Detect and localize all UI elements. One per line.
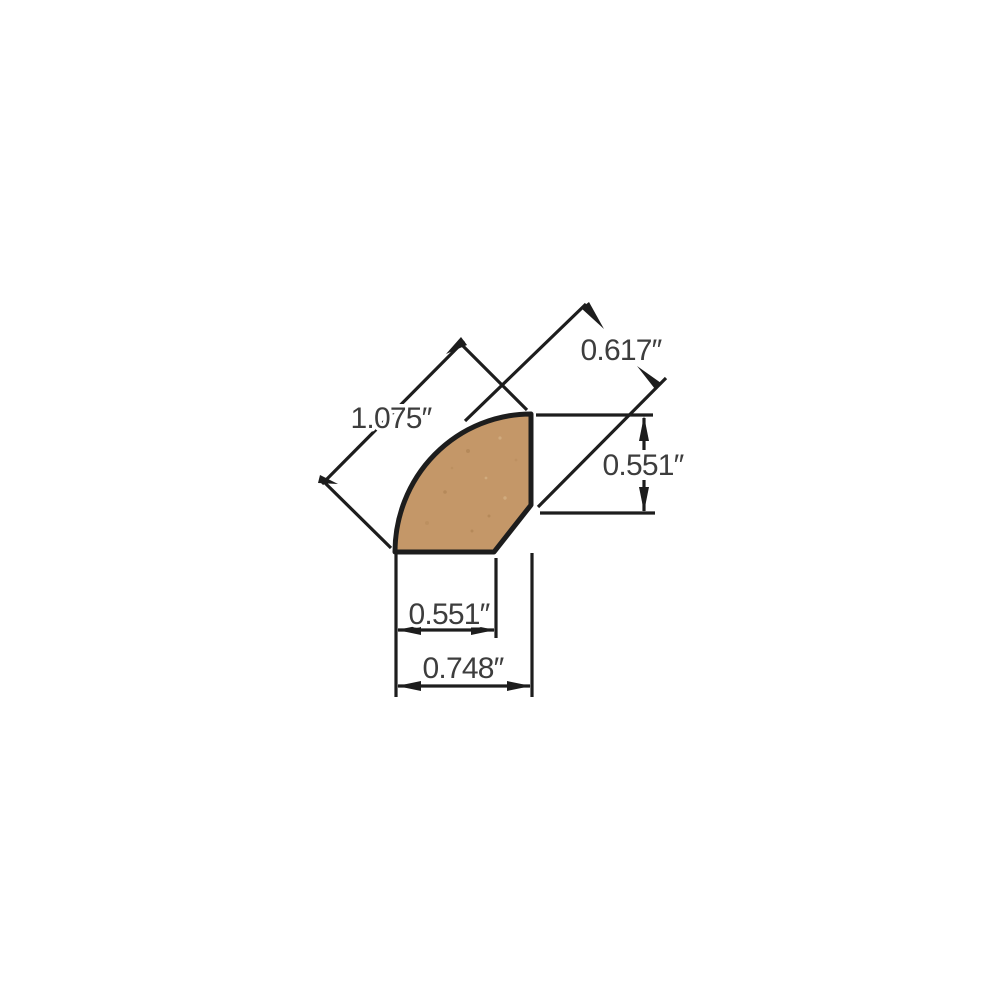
arrowhead-right xyxy=(507,681,531,691)
extension-line xyxy=(465,304,586,421)
dimension-bottom-inner-width: 0.551″ xyxy=(397,558,496,638)
arrowhead-up xyxy=(639,416,649,441)
extension-line xyxy=(461,344,527,410)
dimension-label: 0.551″ xyxy=(603,449,685,482)
extension-line xyxy=(320,478,391,548)
dimension-label: 0.748″ xyxy=(423,652,505,685)
arrowhead-down xyxy=(639,487,649,512)
dimension-label: 0.617″ xyxy=(581,334,663,367)
dimension-arrow-tick xyxy=(637,366,661,389)
arrowhead-left xyxy=(397,681,421,691)
dimension-arrow-tick xyxy=(446,337,467,354)
dimension-label: 1.075″ xyxy=(351,402,433,435)
drawing-canvas: 0.617″ 1.075″ 0.551″ 0.551″ xyxy=(0,0,1000,1000)
dimension-right-height: 0.551″ xyxy=(536,415,685,513)
dimension-label: 0.551″ xyxy=(409,598,491,631)
dimension-arrow-tick xyxy=(581,302,604,329)
moulding-profile-drawing: 0.617″ 1.075″ 0.551″ 0.551″ xyxy=(0,0,1000,1000)
